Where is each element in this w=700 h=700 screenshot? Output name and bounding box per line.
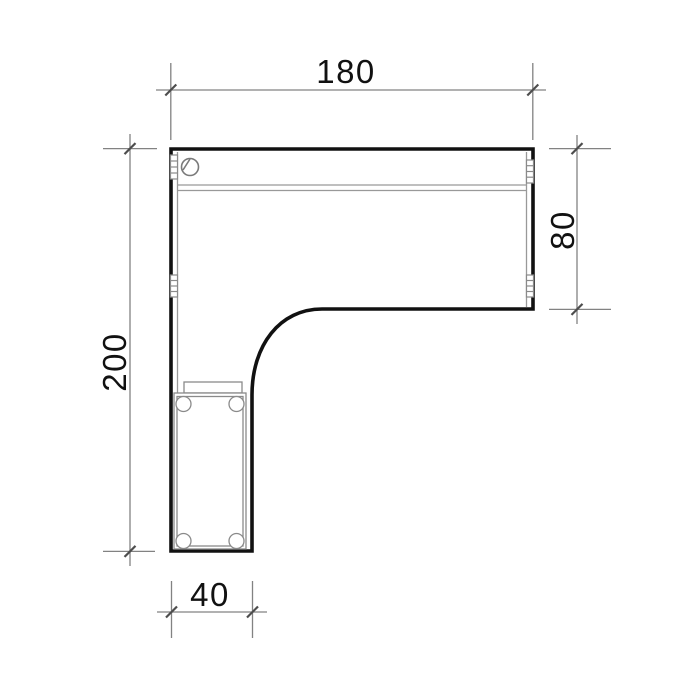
dimension-label-left: 200 [96,332,133,392]
caster-bottom-right-icon [229,534,244,549]
grommet-icon [182,159,199,176]
hinge-top-left-icon [171,155,178,179]
dimension-label-right: 80 [544,210,581,250]
hinge-mid-left-icon [171,275,178,297]
pedestal-body-outer [174,393,246,549]
caster-top-left-icon [176,397,191,412]
dimension-right: 80 [544,135,611,324]
desk-plan-drawing: 180 200 80 [0,0,700,700]
caster-bottom-left-icon [176,534,191,549]
dimension-left: 200 [96,134,157,566]
hinge-mid-right-icon [527,275,534,297]
dimension-label-bottom: 40 [190,576,230,613]
pedestal [174,382,246,549]
hinge-top-right-icon [527,160,534,183]
dimension-bottom: 40 [157,576,267,638]
dimension-label-top: 180 [316,53,376,90]
pedestal-handle [184,382,242,393]
dimension-top: 180 [156,53,546,140]
technical-drawing-canvas: 180 200 80 [0,0,700,700]
caster-top-right-icon [229,397,244,412]
